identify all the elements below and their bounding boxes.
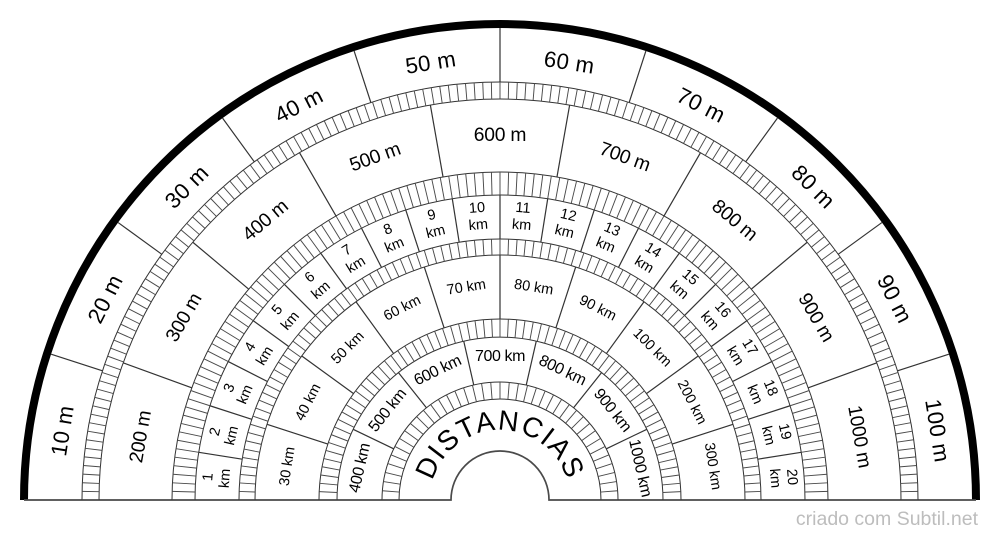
svg-text:km: km — [217, 468, 234, 489]
svg-text:11: 11 — [515, 200, 531, 217]
svg-text:km: km — [766, 468, 783, 489]
svg-text:600 m: 600 m — [474, 125, 527, 146]
svg-text:km: km — [511, 217, 532, 234]
svg-text:700 km: 700 km — [475, 348, 525, 365]
svg-text:1: 1 — [200, 472, 217, 481]
svg-text:10: 10 — [468, 200, 485, 217]
svg-text:20: 20 — [783, 468, 800, 485]
svg-text:km: km — [468, 217, 489, 234]
svg-text:criado com Subtil.net: criado com Subtil.net — [796, 508, 979, 530]
